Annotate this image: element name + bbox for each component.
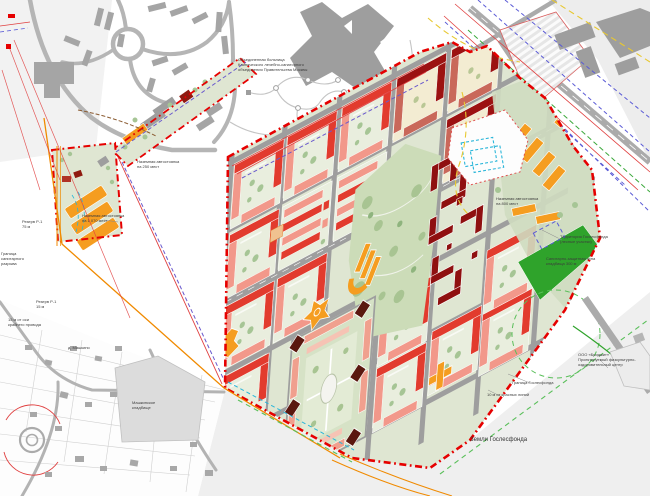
masterplan-svg xyxy=(0,0,650,496)
label-fok: ООО «Бриджит» Проектируемый физкультурно… xyxy=(578,352,642,367)
label-goslesfond-territory: Территория Гослесфонда (лесные участки) xyxy=(560,234,616,244)
label-sanitary-zone: Санитарно-защитная зона кладбища 300 м xyxy=(546,256,602,266)
cemetery xyxy=(115,356,205,442)
label-reserve-75: Резерв Р-1 75 м xyxy=(22,219,46,229)
label-goslesfond-lands: Земли Гослесфонда xyxy=(470,437,570,445)
label-parking-right: Наземная автостоянка на 800 мест xyxy=(496,196,540,206)
label-hospital: Объединенная больница Клинического лечеб… xyxy=(238,57,310,72)
label-sanitary-gap: Граница санитарного разрыва xyxy=(1,251,35,266)
left-protrusion xyxy=(52,143,122,251)
label-strip-note: Наземная автостоянка на 250 мест xyxy=(137,159,185,169)
label-village: д. Машкино xyxy=(68,345,100,350)
masterplan-map: Объединенная больница Клинического лечеб… xyxy=(0,0,650,496)
label-lep-offset: 15 м от оси крайнего провода xyxy=(8,317,56,327)
label-goslesfond-border: Граница Гослесфонда xyxy=(512,380,564,385)
label-red-lines-offset: 10 м от красных линий xyxy=(487,392,539,397)
label-parking-left: Наземная автостоянка на 1 070 мест xyxy=(82,213,126,223)
label-cemetery: Машкинское кладбище xyxy=(132,400,170,410)
label-reserve-15: Резерв Р-1 15 м xyxy=(36,299,60,309)
